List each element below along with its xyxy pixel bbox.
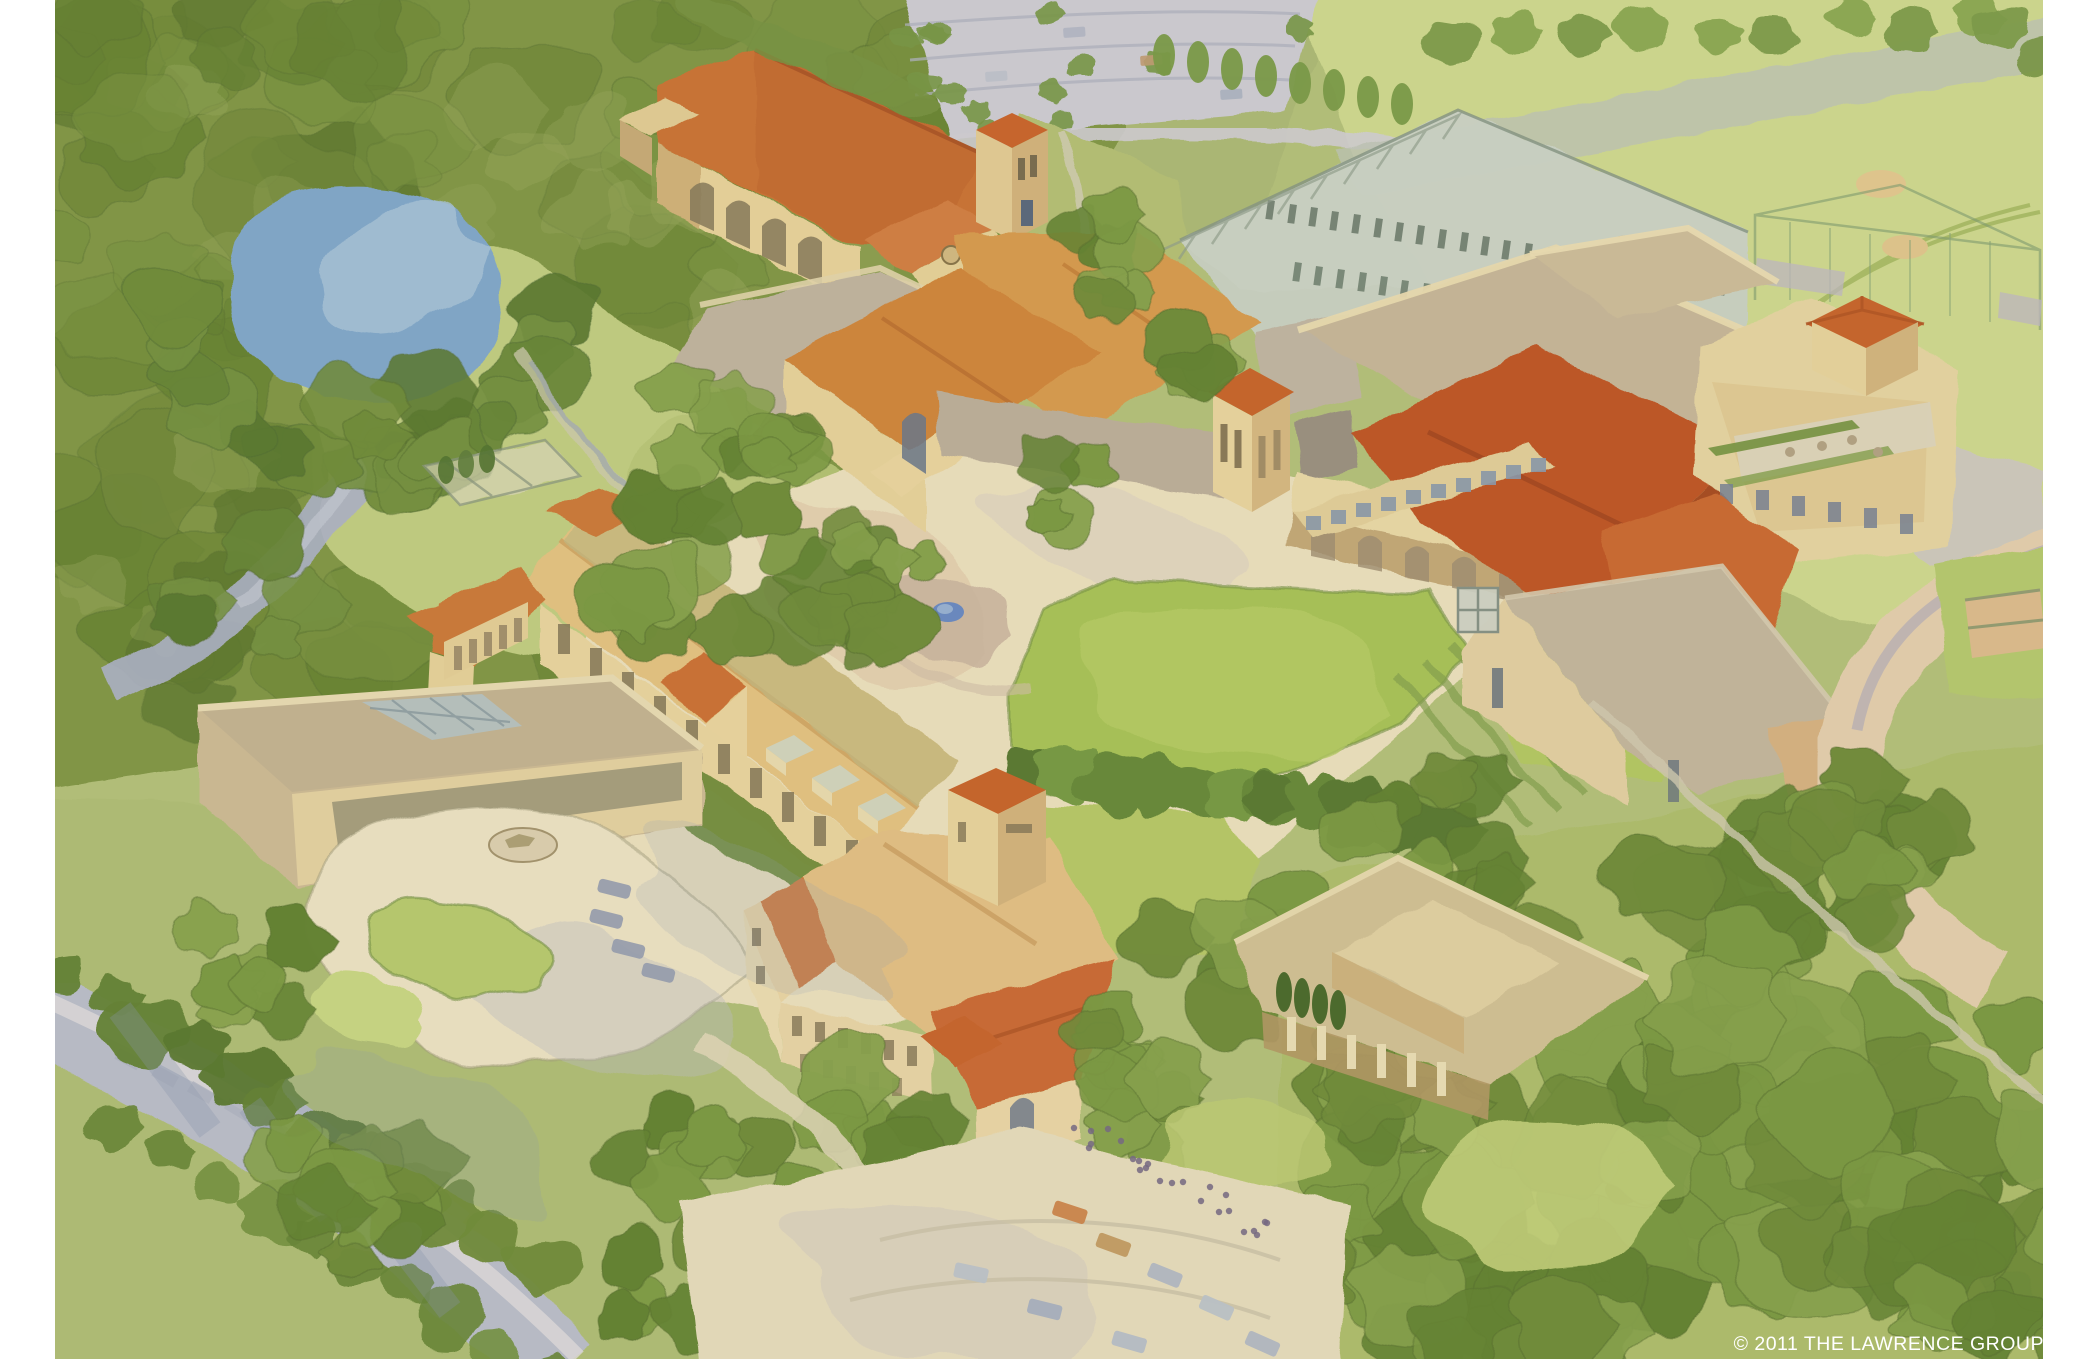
svg-text:© 2011 THE LAWRENCE GROUP: © 2011 THE LAWRENCE GROUP [1734, 1333, 2044, 1355]
